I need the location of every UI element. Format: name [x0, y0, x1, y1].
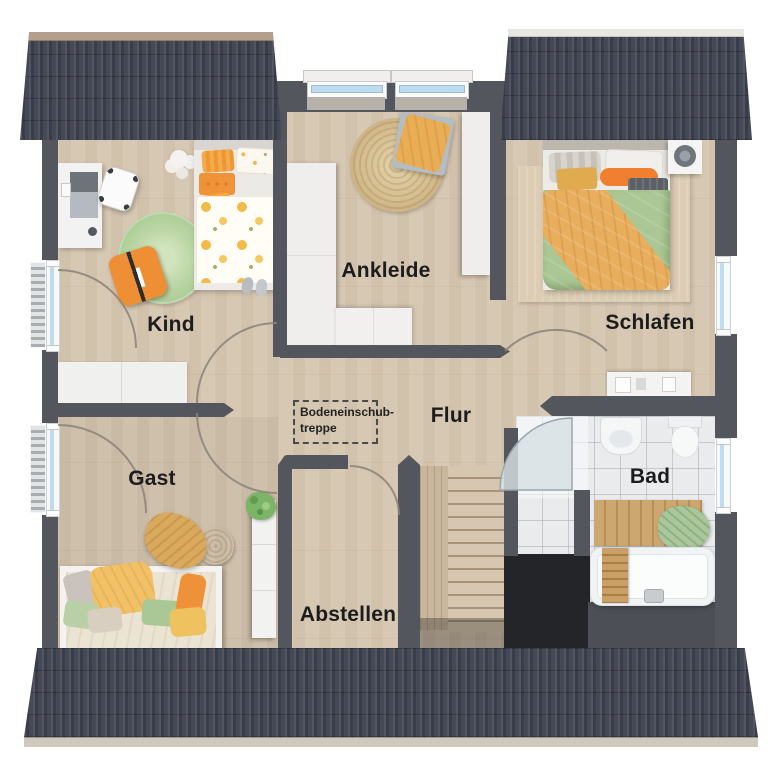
flower-shelf [170, 150, 188, 168]
roof-tiles [24, 648, 758, 737]
sideboard-item [662, 377, 676, 392]
dormer-inner-sill [307, 97, 385, 110]
guest-pillow-beige [87, 606, 123, 633]
kids-polkadot-duvet [196, 196, 280, 286]
wall-left-outer [42, 350, 58, 423]
sideboard-item [636, 378, 646, 390]
room-label-schlafen: Schlafen [605, 311, 694, 335]
roof-top-left [20, 32, 282, 140]
stairwell-void [504, 554, 590, 648]
kids-pillow-striped [201, 149, 234, 173]
wardrobe-right [462, 112, 490, 275]
floor-plan: Bodeneinschub- treppe Kind Ankleide Schl… [0, 0, 775, 775]
dormer-inner-sill [395, 97, 467, 110]
stair-treads [448, 466, 504, 632]
potted-plant [246, 492, 276, 520]
attic-hatch-label-line1: Bodeneinschub- [300, 405, 376, 421]
roof-ridge [500, 29, 752, 37]
wall-right-outer [715, 334, 737, 438]
stair-railing [420, 466, 448, 630]
duvet-wrinkles [543, 190, 670, 290]
window-right-bad [716, 438, 731, 514]
window-left-kind [46, 260, 60, 352]
guest-pillow-yellow [169, 606, 207, 637]
phone [61, 183, 71, 197]
bathtub-caddy [602, 548, 628, 603]
dormer-window-glass [399, 85, 465, 93]
radiator [30, 262, 46, 348]
wardrobe-bottom [336, 308, 412, 348]
dormer-window-glass [311, 85, 383, 93]
guest-shelf [252, 500, 276, 638]
mug [88, 227, 97, 236]
attic-hatch-label-line2: treppe [300, 421, 376, 437]
wall-abstellen-flur [286, 455, 348, 469]
wall-bad-stairs [504, 428, 518, 556]
room-label-bad: Bad [630, 465, 670, 489]
bath-corner-wall-area [588, 602, 715, 648]
wall-ankleide-flur [280, 345, 510, 358]
wall-abstellen-stairs [398, 455, 420, 650]
room-label-flur: Flur [431, 404, 471, 428]
wall-schlafen-bad [540, 396, 715, 416]
radiator [30, 425, 46, 513]
roof-ridge [20, 32, 282, 41]
wall-gast-abstellen [278, 455, 292, 648]
room-label-kind: Kind [147, 313, 194, 337]
room-label-ankleide: Ankleide [341, 259, 430, 283]
wall-right-outer [715, 138, 737, 256]
pillow-mustard [556, 167, 597, 191]
laptop-screen [70, 172, 98, 192]
green-duvet [543, 190, 670, 290]
wardrobe-left [287, 163, 336, 348]
roof-bottom [24, 648, 758, 746]
wall-right-outer [715, 512, 737, 650]
room-label-gast: Gast [128, 467, 176, 491]
wall-left-outer [42, 138, 58, 260]
roof-top-right [500, 29, 752, 140]
shower-tile-area [516, 416, 588, 498]
roof-gutter [24, 737, 758, 747]
toilet [671, 426, 699, 458]
nightstand-lamp [674, 145, 696, 167]
bathtub-faucet [644, 589, 664, 603]
kids-pillow-dotted [235, 147, 276, 175]
wall-kind-gast [58, 403, 234, 417]
green-towel [658, 506, 710, 550]
wall-left-outer [42, 515, 58, 650]
window-left-gast [46, 423, 60, 517]
window-right-schlafen [716, 256, 731, 336]
wall-void-bath [574, 490, 590, 556]
stair-shadow [420, 618, 504, 648]
washbasin [600, 417, 642, 455]
kids-pillow-orange [199, 173, 235, 195]
room-label-abstellen: Abstellen [300, 603, 396, 627]
low-cabinet [58, 362, 187, 403]
attic-hatch-outline: Bodeneinschub- treppe [293, 400, 378, 444]
sideboard-item [615, 377, 631, 393]
